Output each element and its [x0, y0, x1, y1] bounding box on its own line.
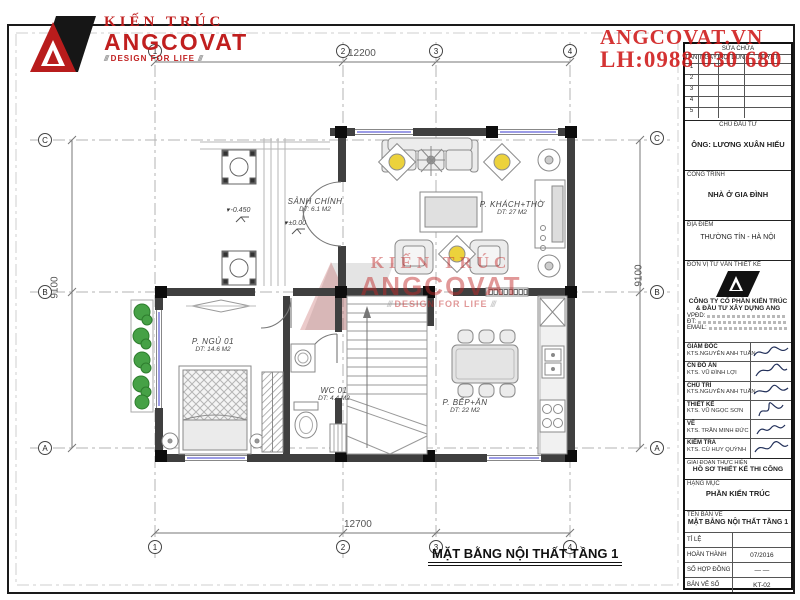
room-label-wc: WC 01 DT: 4.4 M2 [306, 386, 362, 402]
title-block: SỬA CHỮA LẦN NGÀY NỘI DUNG DUYỆT 1 2 3 4… [683, 42, 793, 590]
grid-bubble-col-1-bottom: 1 [148, 540, 162, 554]
grid-bubble-row-a-left: A [38, 441, 52, 455]
signature-mark [751, 362, 791, 380]
grid-bubble-row-a-right: A [650, 441, 664, 455]
drawing-sheet: KIẾN TRÚC ANGCOVAT DESIGN FOR LIFE ANGCO… [0, 0, 800, 600]
website-text: ANGCOVAT.VN [600, 26, 782, 48]
signature-mark [751, 343, 791, 361]
dim-left: 9100 [50, 276, 61, 298]
grid-bubble-row-b-right: B [650, 285, 664, 299]
signatures-section: GIÁM ĐỐCKTS.NGUYỄN ANH TUẤN CN ĐỒ ÁNKTS.… [685, 342, 791, 458]
grid-bubble-row-c-right: C [650, 131, 664, 145]
watermark: KIẾN TRÚC ANGCOVAT DESIGN FOR LIFE [336, 253, 546, 309]
owner-section: CHỦ ĐẦU TƯ ÔNG: LƯƠNG XUÂN HIẾU [685, 120, 791, 170]
info-table: TỈ LỆ HOÀN THÀNH07/2016 SỐ HỢP ĐỒNG— — B… [685, 532, 791, 592]
location-section: ĐỊA ĐIỂM THƯỜNG TÍN - HÀ NỘI [685, 220, 791, 260]
phase-section: GIAI ĐOẠN THỰC HIỆN HỒ SƠ THIẾT KẾ THI C… [685, 458, 791, 479]
level-main: ±0.00 [284, 219, 306, 227]
room-label-hall: SẢNH CHÍNH DT: 6.1 M2 [280, 197, 350, 213]
project-section: CÔNG TRÌNH NHÀ Ở GIA ĐÌNH [685, 170, 791, 220]
grid-bubble-col-2-bottom: 2 [336, 540, 350, 554]
dim-bottom: 12700 [344, 519, 372, 530]
grid-bubble-row-b-left: B [38, 285, 52, 299]
hatch-icon [198, 54, 202, 63]
room-label-kitchen: P. BẾP+ĂN DT: 22 M2 [428, 398, 502, 414]
grid-bubble-col-4-top: 4 [563, 44, 577, 58]
signature-row: CN ĐỒ ÁNKTS. VŨ ĐÌNH LỢI [685, 361, 791, 380]
hatch-icon [387, 299, 392, 309]
drawing-name-section: TÊN BẢN VẼ MẶT BẰNG NỘI THẤT TẦNG 1 [685, 510, 791, 532]
signature-row: CHỦ TRÌKTS.NGUYỄN ANH TUẤN [685, 381, 791, 400]
grid-bubble-row-c-left: C [38, 133, 52, 147]
logo-block: KIẾN TRÚC ANGCOVAT DESIGN FOR LIFE [28, 14, 248, 76]
signature-mark [751, 401, 791, 419]
signature-mark [751, 382, 791, 400]
watermark-tagline: DESIGN FOR LIFE [336, 299, 546, 309]
drawing-title: MẶT BẰNG NỘI THẤT TẦNG 1 [428, 546, 622, 566]
dim-top: 12200 [348, 48, 376, 59]
hatch-icon [104, 54, 108, 63]
logo-tagline: DESIGN FOR LIFE [104, 54, 248, 63]
room-label-living: P. KHÁCH+THỜ DT: 27 M2 [472, 200, 552, 216]
signature-row: KIỂM TRAKTS. CÙ HUY QUỲNH [685, 438, 791, 457]
consultant-logo-icon [716, 271, 760, 297]
level-entry: -0.450 [226, 206, 250, 214]
hotline-text: LH:0988 030 680 [600, 48, 782, 72]
signature-row: VẼKTS. TRẦN MINH ĐỨC [685, 419, 791, 438]
contact-block: ANGCOVAT.VN LH:0988 030 680 [600, 26, 782, 72]
signature-row: GIÁM ĐỐCKTS.NGUYỄN ANH TUẤN [685, 342, 791, 361]
dim-right: 9100 [634, 264, 645, 286]
room-label-bedroom: P. NGỦ 01 DT: 14.6 M2 [178, 337, 248, 353]
category-section: HẠNG MỤC PHẦN KIẾN TRÚC [685, 479, 791, 510]
floor-plan-svg [0, 0, 800, 600]
grid-bubble-col-3-top: 3 [429, 44, 443, 58]
hatch-icon [491, 299, 496, 309]
logo-name: ANGCOVAT [104, 31, 248, 54]
consultant-section: ĐƠN VỊ TƯ VẤN THIẾT KẾ CÔNG TY CỔ PHẦN K… [685, 260, 791, 342]
signature-mark [751, 439, 791, 457]
signature-mark [751, 420, 791, 438]
grid-bubble-col-2-top: 2 [336, 44, 350, 58]
angcovat-logo-icon [28, 14, 98, 76]
signature-row: THIẾT KẾKTS. VŨ NGỌC SƠN [685, 400, 791, 419]
